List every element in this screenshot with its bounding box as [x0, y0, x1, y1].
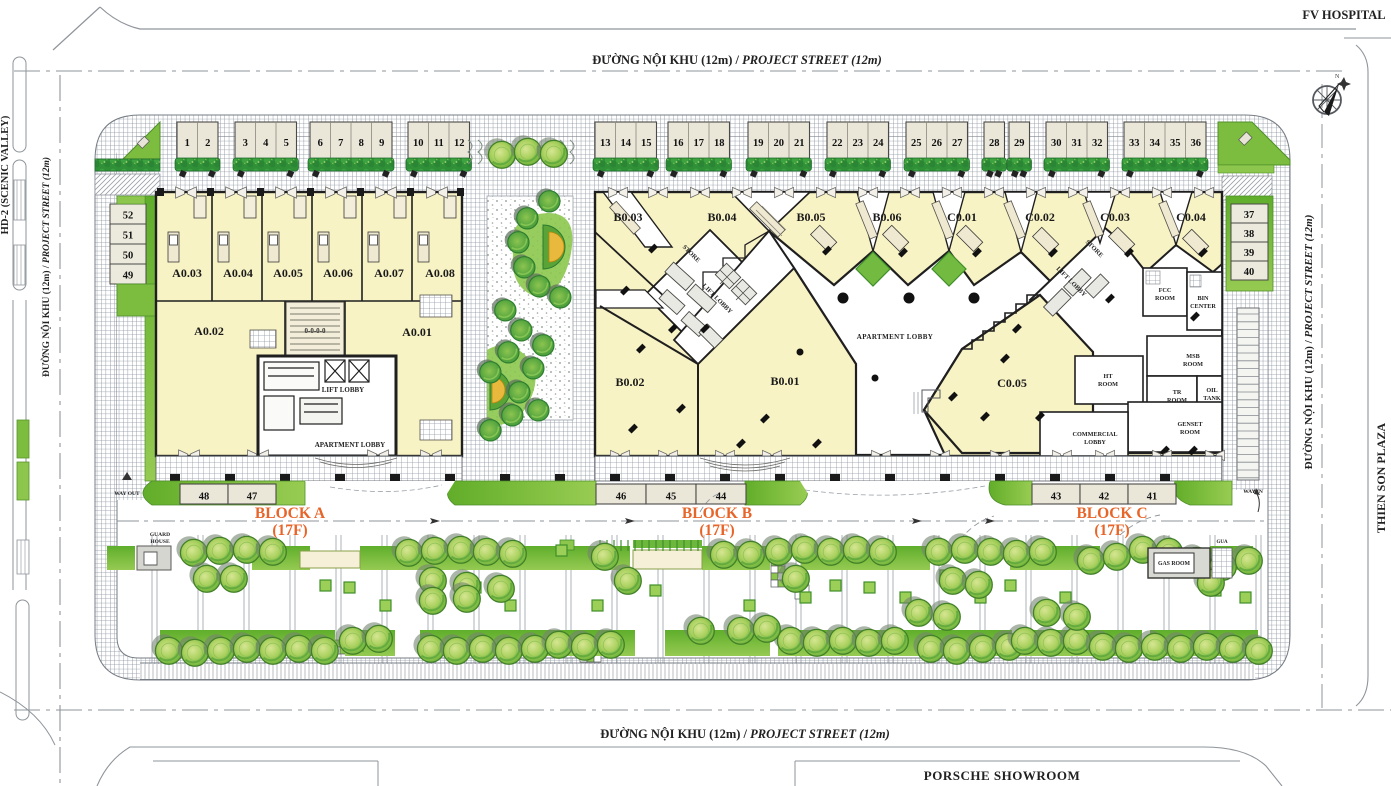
svg-text:48: 48	[199, 492, 210, 503]
svg-text:C0.05: C0.05	[997, 376, 1027, 390]
svg-text:41: 41	[1147, 492, 1158, 503]
svg-text:43: 43	[1051, 492, 1062, 503]
svg-text:ROOM: ROOM	[1167, 397, 1187, 404]
svg-text:ROOM: ROOM	[1155, 295, 1175, 302]
svg-text:B0.04: B0.04	[707, 210, 736, 224]
svg-text:19: 19	[753, 138, 764, 149]
svg-text:GENSET: GENSET	[1177, 421, 1203, 428]
svg-text:C0.04: C0.04	[1176, 210, 1206, 224]
svg-text:TR: TR	[1173, 389, 1182, 396]
svg-text:ROOM: ROOM	[1183, 361, 1203, 368]
svg-text:B0.03: B0.03	[613, 210, 642, 224]
svg-text:3: 3	[243, 138, 248, 149]
svg-text:LIFT LOBBY: LIFT LOBBY	[322, 386, 364, 394]
svg-text:42: 42	[1099, 492, 1110, 503]
svg-text:33: 33	[1129, 138, 1140, 149]
svg-text:34: 34	[1150, 138, 1161, 149]
svg-text:14: 14	[621, 138, 632, 149]
svg-text:26: 26	[932, 138, 943, 149]
svg-text:HD-2 (SCENIC VALLEY): HD-2 (SCENIC VALLEY)	[0, 115, 11, 234]
svg-text:16: 16	[673, 138, 684, 149]
svg-text:8: 8	[359, 138, 364, 149]
svg-text:49: 49	[123, 271, 134, 282]
svg-text:21: 21	[794, 138, 805, 149]
svg-text:4: 4	[263, 138, 269, 149]
svg-text:1: 1	[185, 138, 190, 149]
svg-text:ROOM: ROOM	[1098, 381, 1118, 388]
svg-text:B0.01: B0.01	[770, 374, 799, 388]
svg-text:APARTMENT LOBBY: APARTMENT LOBBY	[857, 333, 933, 341]
svg-text:COMMERCIAL: COMMERCIAL	[1072, 431, 1117, 438]
svg-text:BLOCK C: BLOCK C	[1076, 505, 1147, 522]
svg-text:C0.02: C0.02	[1025, 210, 1055, 224]
svg-text:GUARD: GUARD	[150, 532, 170, 538]
svg-text:18: 18	[714, 138, 725, 149]
svg-text:22: 22	[832, 138, 843, 149]
svg-text:A0.04: A0.04	[223, 266, 253, 280]
svg-text:13: 13	[600, 138, 611, 149]
svg-text:45: 45	[666, 492, 677, 503]
svg-text:ROOM: ROOM	[1180, 429, 1200, 436]
svg-text:B0.05: B0.05	[796, 210, 825, 224]
svg-text:0-0-0-0: 0-0-0-0	[305, 327, 326, 335]
svg-text:HOUSE: HOUSE	[150, 539, 170, 545]
svg-text:5: 5	[284, 138, 289, 149]
svg-text:11: 11	[434, 138, 444, 149]
svg-text:30: 30	[1051, 138, 1062, 149]
svg-text:10: 10	[413, 138, 424, 149]
svg-text:A0.03: A0.03	[172, 266, 202, 280]
svg-text:(17F): (17F)	[699, 522, 734, 539]
svg-text:A0.05: A0.05	[273, 266, 303, 280]
svg-text:40: 40	[1244, 267, 1255, 278]
svg-text:C0.01: C0.01	[947, 210, 977, 224]
svg-text:GUA: GUA	[1216, 540, 1228, 545]
svg-text:WAY OUT: WAY OUT	[114, 491, 140, 497]
svg-text:20: 20	[774, 138, 785, 149]
svg-text:FCC: FCC	[1159, 287, 1172, 294]
svg-text:GAS ROOM: GAS ROOM	[1158, 561, 1191, 567]
svg-text:MSB: MSB	[1186, 353, 1199, 360]
svg-text:ĐƯỜNG NỘI KHU (12m) / PROJECT: ĐƯỜNG NỘI KHU (12m) / PROJECT STREET (12…	[1302, 215, 1315, 470]
svg-text:12: 12	[454, 138, 465, 149]
svg-text:ĐƯỜNG NỘI KHU (12m) / PROJECT: ĐƯỜNG NỘI KHU (12m) / PROJECT STREET (12…	[600, 727, 889, 741]
svg-text:28: 28	[989, 138, 1000, 149]
svg-text:BLOCK B: BLOCK B	[682, 505, 752, 522]
svg-text:ĐƯỜNG NỘI KHU (12m) / PROJECT: ĐƯỜNG NỘI KHU (12m) / PROJECT STREET (12…	[592, 53, 881, 67]
svg-text:37: 37	[1244, 210, 1255, 221]
svg-text:44: 44	[716, 492, 727, 503]
svg-text:7: 7	[338, 138, 343, 149]
svg-text:50: 50	[123, 251, 134, 262]
svg-text:A0.01: A0.01	[402, 325, 432, 339]
svg-text:B0.02: B0.02	[615, 375, 644, 389]
svg-text:A0.07: A0.07	[374, 266, 404, 280]
svg-text:36: 36	[1191, 138, 1202, 149]
svg-text:C0.03: C0.03	[1100, 210, 1130, 224]
svg-text:B0.06: B0.06	[872, 210, 901, 224]
svg-text:23: 23	[853, 138, 864, 149]
svg-text:THIEN SON PLAZA: THIEN SON PLAZA	[1374, 423, 1388, 533]
svg-text:29: 29	[1014, 138, 1025, 149]
svg-text:A0.02: A0.02	[194, 324, 224, 338]
svg-text:15: 15	[641, 138, 652, 149]
svg-text:HT: HT	[1104, 373, 1114, 380]
svg-text:25: 25	[911, 138, 922, 149]
svg-text:51: 51	[123, 231, 134, 242]
svg-text:35: 35	[1170, 138, 1181, 149]
svg-text:BIN: BIN	[1197, 295, 1209, 302]
svg-text:TANK: TANK	[1203, 395, 1221, 402]
svg-text:47: 47	[247, 492, 258, 503]
svg-text:OIL: OIL	[1206, 387, 1217, 394]
svg-text:6: 6	[318, 138, 323, 149]
svg-text:27: 27	[952, 138, 963, 149]
svg-text:WAY IN: WAY IN	[1243, 489, 1263, 495]
svg-text:17: 17	[694, 138, 705, 149]
svg-text:46: 46	[616, 492, 627, 503]
svg-text:(17F): (17F)	[1094, 522, 1129, 539]
svg-text:31: 31	[1072, 138, 1083, 149]
svg-text:2: 2	[205, 138, 210, 149]
svg-text:24: 24	[873, 138, 884, 149]
svg-text:32: 32	[1092, 138, 1103, 149]
svg-text:FV HOSPITAL: FV HOSPITAL	[1302, 8, 1385, 22]
svg-text:A0.06: A0.06	[323, 266, 353, 280]
svg-text:APARTMENT LOBBY: APARTMENT LOBBY	[315, 441, 385, 449]
svg-text:CENTER: CENTER	[1190, 303, 1216, 310]
svg-text:N: N	[1335, 74, 1340, 80]
svg-text:9: 9	[379, 138, 384, 149]
svg-text:PORSCHE SHOWROOM: PORSCHE SHOWROOM	[924, 768, 1080, 783]
svg-text:52: 52	[123, 211, 134, 222]
svg-text:LOBBY: LOBBY	[1084, 439, 1106, 446]
svg-text:38: 38	[1244, 229, 1255, 240]
svg-text:A0.08: A0.08	[425, 266, 455, 280]
svg-text:39: 39	[1244, 248, 1255, 259]
svg-text:BLOCK A: BLOCK A	[255, 505, 326, 522]
